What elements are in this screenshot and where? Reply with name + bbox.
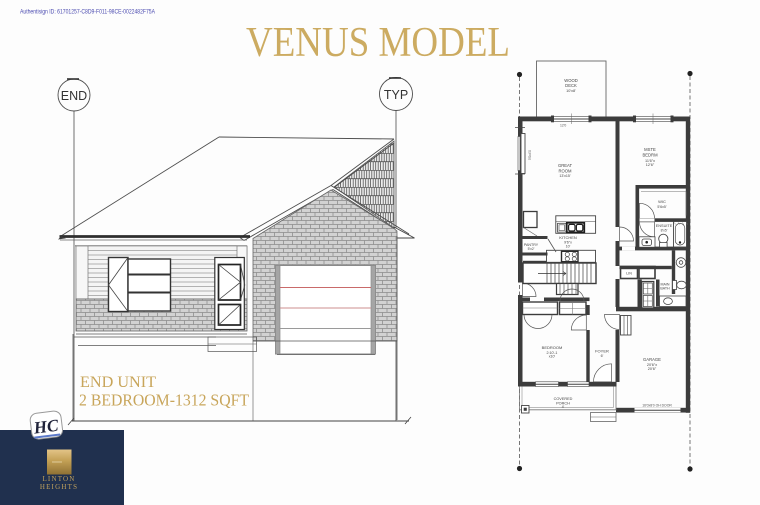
svg-text:GREAT: GREAT (558, 163, 573, 168)
svg-text:13'x15': 13'x15' (559, 174, 570, 178)
svg-text:COVERED: COVERED (554, 397, 573, 401)
svg-text:LIN: LIN (626, 272, 632, 276)
svg-text:5'6x5': 5'6x5' (657, 205, 666, 209)
svg-text:BEDROOM: BEDROOM (542, 345, 563, 350)
svg-text:5'x2': 5'x2' (528, 247, 535, 251)
svg-text:8'x5': 8'x5' (661, 228, 668, 232)
svg-text:2 BEDROOM-1312 SQFT: 2 BEDROOM-1312 SQFT (79, 391, 249, 410)
svg-text:VENUS MODEL: VENUS MODEL (246, 20, 510, 66)
svg-text:BEDRM: BEDRM (642, 152, 658, 157)
svg-text:10': 10' (566, 244, 571, 248)
svg-text:GARAGE: GARAGE (643, 357, 661, 362)
svg-text:DECK: DECK (565, 83, 577, 88)
svg-text:12'0: 12'0 (560, 124, 566, 128)
svg-text:HEIGHTS: HEIGHTS (40, 483, 78, 491)
svg-text:Authentisign ID: 61701257-C8D9: Authentisign ID: 61701257-C8D9-F011-98CE… (20, 9, 156, 16)
svg-text:LINTON: LINTON (42, 475, 75, 483)
svg-text:10'x8': 10'x8' (566, 89, 576, 93)
svg-text:END UNIT: END UNIT (80, 374, 156, 391)
svg-text:KITCHEN: KITCHEN (559, 235, 577, 240)
svg-text:4': 4' (562, 405, 565, 409)
svg-text:6': 6' (601, 354, 604, 358)
svg-text:x10': x10' (549, 355, 556, 359)
svg-text:BATH: BATH (660, 287, 670, 291)
svg-text:END: END (61, 89, 87, 103)
svg-text:16'0x8'0 OH DOOR: 16'0x8'0 OH DOOR (642, 403, 672, 407)
svg-text:5'0x4'0: 5'0x4'0 (528, 150, 532, 160)
svg-text:TYP: TYP (384, 88, 408, 102)
svg-text:WIC: WIC (658, 199, 666, 204)
svg-text:MSTE: MSTE (644, 147, 656, 152)
svg-text:ROOM: ROOM (558, 168, 572, 173)
svg-text:20'6": 20'6" (648, 367, 657, 371)
svg-text:12'6": 12'6" (646, 163, 655, 167)
svg-text:FOYER: FOYER (595, 349, 609, 354)
